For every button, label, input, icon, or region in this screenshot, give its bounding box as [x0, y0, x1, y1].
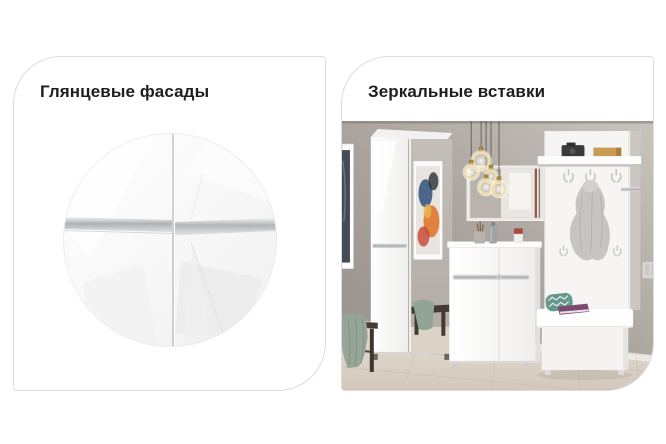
dresser: [447, 221, 541, 369]
wardrobe: [371, 129, 452, 360]
panel-shelf: [538, 156, 641, 164]
wall-artwork-partial: [342, 144, 353, 268]
card-mirror-inserts: Зеркальные вставки: [341, 56, 654, 391]
glossy-doors-graphic: [63, 133, 277, 347]
dresser-handle-strip: [501, 275, 529, 280]
red-jar: [514, 228, 523, 243]
card-title: Зеркальные вставки: [368, 82, 653, 102]
wardrobe-handle-strip: [373, 243, 407, 248]
card-glossy-facades: Глянцевые фасады: [13, 56, 326, 391]
mirror-reflection-bench: [410, 300, 453, 354]
glossy-doors-circle-image: [63, 133, 277, 347]
dresser-handle-strip: [453, 275, 497, 280]
light-switch: [642, 262, 653, 279]
hallway-photo: [342, 121, 653, 390]
coat-rack-panel: [538, 131, 641, 310]
mirror-reflection-artwork: [414, 161, 443, 259]
hallway-scene-graphic: [342, 121, 653, 390]
card-title: Глянцевые фасады: [40, 82, 325, 102]
ceiling-line: [342, 121, 653, 124]
